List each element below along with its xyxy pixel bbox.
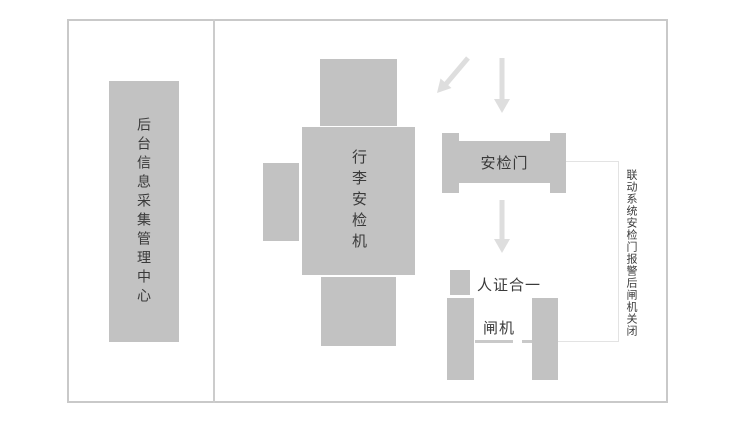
backend-info-center-box: 后台信息采集管理中心 [109, 81, 179, 342]
baggage-machine-conveyor-top [320, 59, 397, 126]
linkage-note-label: 联动系统安检门报警后闸机关闭 [620, 169, 641, 337]
baggage-machine-body: 行李安检机 [302, 127, 415, 275]
panel-divider-line [213, 19, 215, 403]
baggage-machine-conveyor-bottom [321, 277, 396, 346]
gate-label: 闸机 [483, 317, 515, 338]
linkage-connector-top-line [566, 161, 618, 162]
backend-info-center-label: 后台信息采集管理中心 [134, 117, 154, 307]
baggage-machine-label: 行李安检机 [348, 149, 369, 254]
linkage-note: 联动系统安检门报警后闸机关闭 [620, 169, 641, 341]
security-door-pillar-right [550, 133, 566, 193]
security-door-body: 安检门 [459, 141, 550, 183]
diagram-canvas: 后台信息采集管理中心 行李安检机 安检门 联动系统安检门报警后闸机关闭 人证合一 [0, 0, 745, 424]
baggage-machine-side-box [263, 163, 299, 241]
linkage-connector-bottom-line [558, 341, 618, 342]
gate-flap-left [475, 340, 513, 343]
gate-pillar-right [532, 298, 558, 380]
gate-pillar-left [447, 298, 474, 380]
security-door-pillar-left [442, 133, 459, 193]
security-door-label: 安检门 [480, 152, 528, 173]
id-verification-box [450, 270, 470, 295]
id-verification-label: 人证合一 [477, 274, 541, 295]
linkage-connector-vertical-line [618, 161, 619, 342]
gate-flap-right [522, 340, 532, 343]
